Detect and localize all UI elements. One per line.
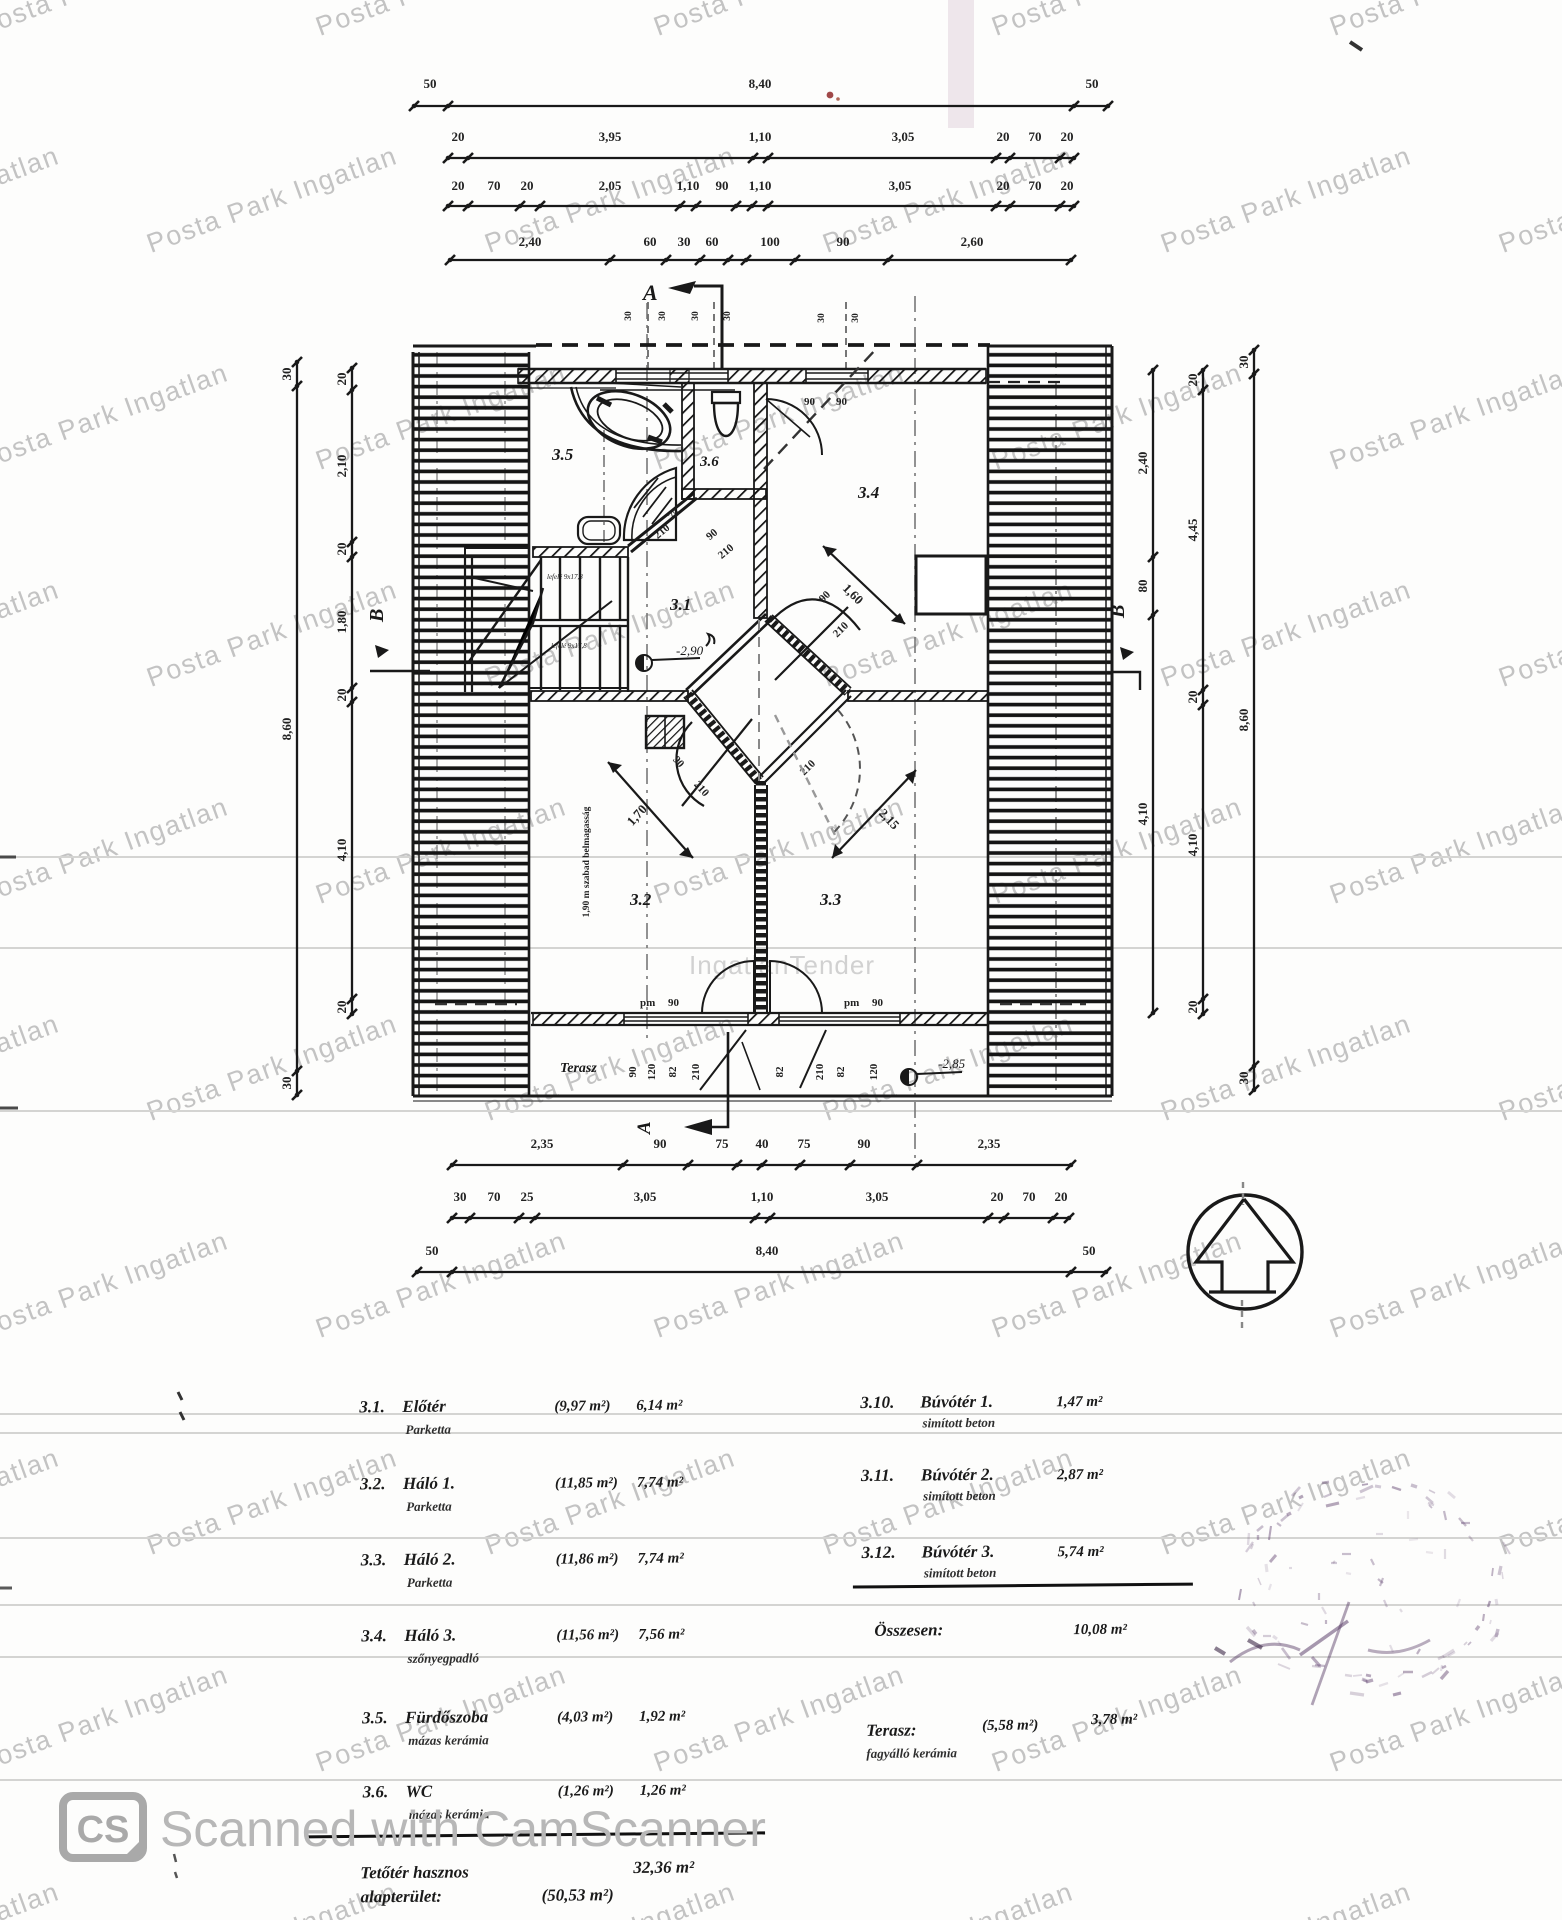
svg-text:10,08 m²: 10,08 m²: [1073, 1622, 1127, 1638]
svg-text:25: 25: [521, 1189, 535, 1204]
svg-text:4,45: 4,45: [1185, 518, 1200, 541]
svg-text:20: 20: [1185, 374, 1200, 387]
svg-text:30: 30: [624, 311, 634, 321]
svg-text:8,40: 8,40: [749, 76, 772, 91]
svg-text:Parketta: Parketta: [407, 1575, 453, 1590]
svg-text:20: 20: [452, 129, 465, 144]
svg-text:Fürdőszoba: Fürdőszoba: [404, 1707, 489, 1727]
svg-text:Posta Park Ingatlan: Posta Park Ingatlan: [0, 1442, 63, 1561]
svg-text:82: 82: [835, 1066, 847, 1078]
svg-text:3,05: 3,05: [892, 129, 915, 144]
svg-text:2,35: 2,35: [531, 1136, 554, 1151]
svg-text:210: 210: [716, 541, 737, 561]
svg-text:30: 30: [658, 311, 668, 321]
svg-text:3.4: 3.4: [857, 483, 879, 502]
svg-text:Terasz: Terasz: [560, 1061, 597, 1076]
svg-text:1,90 m szabad belmagasság: 1,90 m szabad belmagasság: [582, 806, 592, 917]
svg-text:20: 20: [1061, 129, 1074, 144]
svg-text:50: 50: [1086, 76, 1099, 91]
svg-text:20: 20: [1061, 178, 1074, 193]
svg-text:60: 60: [706, 234, 719, 249]
svg-text:1,10: 1,10: [749, 129, 772, 144]
svg-text:82: 82: [774, 1066, 786, 1078]
svg-text:3.5.: 3.5.: [361, 1708, 388, 1727]
svg-text:3.3: 3.3: [819, 890, 842, 909]
svg-text:4,10: 4,10: [334, 839, 349, 862]
svg-text:Posta Park Ingatlan: Posta Park Ingatlan: [481, 1442, 739, 1561]
svg-text:75: 75: [798, 1136, 812, 1151]
svg-text:szőnyegpadló: szőnyegpadló: [406, 1650, 479, 1666]
svg-text:80: 80: [1135, 580, 1150, 593]
svg-text:Posta Park Ingatlan: Posta Park Ingatlan: [1326, 1225, 1562, 1344]
svg-text:-2,85: -2,85: [938, 1056, 966, 1071]
svg-text:3,05: 3,05: [866, 1189, 889, 1204]
svg-text:Posta Park Ingatlan: Posta Park Ingatlan: [1495, 574, 1562, 693]
svg-text:Posta Park Ingatlan: Posta Park Ingatlan: [0, 0, 232, 42]
svg-text:2,40: 2,40: [519, 234, 542, 249]
svg-text:30: 30: [279, 1077, 294, 1090]
svg-text:3.2.: 3.2.: [359, 1474, 386, 1493]
svg-text:lefelé 9x17,8: lefelé 9x17,8: [551, 642, 587, 650]
svg-text:Posta Park Ingatlan: Posta Park Ingatlan: [650, 1225, 908, 1344]
svg-text:Posta Park Ingatlan: Posta Park Ingatlan: [1326, 0, 1562, 42]
svg-text:A: A: [641, 280, 658, 305]
svg-text:50: 50: [1083, 1243, 1096, 1258]
svg-text:Összesen:: Összesen:: [874, 1620, 943, 1640]
svg-text:A: A: [634, 1121, 655, 1135]
svg-text:120: 120: [646, 1063, 658, 1080]
svg-text:Posta Park Ingatlan: Posta Park Ingatlan: [819, 1876, 1077, 1920]
svg-text:3.6: 3.6: [699, 454, 719, 470]
svg-text:B: B: [1107, 605, 1129, 619]
svg-text:Tetőtér hasznos: Tetőtér hasznos: [360, 1862, 469, 1882]
svg-text:30: 30: [678, 234, 691, 249]
svg-text:-2,90: -2,90: [676, 643, 704, 658]
svg-text:Posta Park Ingatlan: Posta Park Ingatlan: [0, 1659, 232, 1778]
svg-text:30: 30: [851, 313, 861, 323]
svg-text:Posta Park Ingatlan: Posta Park Ingatlan: [0, 140, 63, 259]
svg-text:(11,56 m²): (11,56 m²): [556, 1627, 619, 1644]
svg-text:70: 70: [488, 1189, 501, 1204]
svg-text:90: 90: [836, 396, 848, 408]
svg-text:90: 90: [668, 997, 680, 1009]
svg-text:pm: pm: [844, 997, 859, 1009]
svg-text:82: 82: [667, 1066, 679, 1078]
svg-text:8,60: 8,60: [279, 718, 294, 741]
svg-text:90: 90: [872, 997, 884, 1009]
svg-text:Posta Park Ingatlan: Posta Park Ingatlan: [988, 1225, 1246, 1344]
svg-text:30: 30: [279, 368, 294, 381]
svg-text:90: 90: [837, 234, 850, 249]
svg-text:3,05: 3,05: [889, 178, 912, 193]
svg-text:20: 20: [521, 178, 534, 193]
svg-text:simított beton: simított beton: [921, 1415, 995, 1431]
svg-text:Posta Park Ingatlan: Posta Park Ingatlan: [1157, 1008, 1415, 1127]
svg-text:3,95: 3,95: [599, 129, 622, 144]
svg-text:Posta Park Ingatlan: Posta Park Ingatlan: [0, 791, 232, 910]
svg-text:1,10: 1,10: [677, 178, 700, 193]
svg-text:60: 60: [644, 234, 657, 249]
svg-text:2,05: 2,05: [599, 178, 622, 193]
svg-text:(11,85 m²): (11,85 m²): [555, 1475, 618, 1492]
svg-text:40: 40: [756, 1136, 769, 1151]
svg-text:Posta Park Ingatlan: Posta Park Ingatlan: [143, 1008, 401, 1127]
svg-text:Posta Park Ingatlan: Posta Park Ingatlan: [1157, 140, 1415, 259]
svg-text:Posta Park Ingatlan: Posta Park Ingatlan: [1157, 1442, 1415, 1561]
svg-text:90: 90: [858, 1136, 871, 1151]
svg-text:3.11.: 3.11.: [860, 1466, 894, 1485]
svg-text:2,87 m²: 2,87 m²: [1056, 1467, 1104, 1483]
svg-text:simított beton: simított beton: [922, 1488, 996, 1504]
svg-text:Búvótér 2.: Búvótér 2.: [920, 1465, 994, 1485]
svg-text:fagyálló kerámia: fagyálló kerámia: [866, 1745, 957, 1761]
svg-text:7,56 m²: 7,56 m²: [638, 1627, 685, 1643]
svg-text:70: 70: [1029, 178, 1042, 193]
svg-text:90: 90: [716, 178, 729, 193]
svg-text:6,14 m²: 6,14 m²: [636, 1398, 683, 1414]
svg-text:32,36 m²: 32,36 m²: [632, 1857, 695, 1877]
svg-text:20: 20: [991, 1189, 1004, 1204]
svg-text:4,10: 4,10: [1135, 803, 1150, 826]
svg-text:75: 75: [716, 1136, 730, 1151]
svg-text:Posta Park Ingatlan: Posta Park Ingatlan: [1495, 1876, 1562, 1920]
svg-text:2,10: 2,10: [334, 455, 349, 478]
svg-text:3.1.: 3.1.: [358, 1397, 385, 1416]
svg-text:90: 90: [654, 1136, 667, 1151]
svg-text:30: 30: [454, 1189, 467, 1204]
svg-text:Posta Park Ingatlan: Posta Park Ingatlan: [312, 0, 570, 42]
svg-text:Háló 3.: Háló 3.: [403, 1626, 456, 1645]
svg-text:Posta Park Ingatlan: Posta Park Ingatlan: [1157, 574, 1415, 693]
svg-text:5,74 m²: 5,74 m²: [1058, 1544, 1105, 1560]
svg-text:pm: pm: [640, 997, 655, 1009]
svg-text:Háló 2.: Háló 2.: [403, 1550, 456, 1569]
svg-text:2,60: 2,60: [961, 234, 984, 249]
svg-text:20: 20: [1185, 1001, 1200, 1014]
svg-text:20: 20: [1185, 691, 1200, 704]
svg-text:30: 30: [817, 313, 827, 323]
svg-text:Posta Park Ingatlan: Posta Park Ingatlan: [0, 357, 232, 476]
svg-text:Posta Park Ingatlan: Posta Park Ingatlan: [0, 574, 63, 693]
svg-text:210: 210: [814, 1063, 826, 1080]
svg-text:Parketta: Parketta: [406, 1499, 452, 1514]
svg-text:7,74 m²: 7,74 m²: [638, 1551, 685, 1567]
svg-text:Háló 1.: Háló 1.: [402, 1474, 455, 1493]
svg-text:1,10: 1,10: [749, 178, 772, 193]
svg-text:Posta Park Ingatlan: Posta Park Ingatlan: [0, 1876, 63, 1920]
svg-text:Posta Park Ingatlan: Posta Park Ingatlan: [143, 1442, 401, 1561]
svg-text:Posta Park Ingatlan: Posta Park Ingatlan: [988, 0, 1246, 42]
svg-text:20: 20: [997, 178, 1010, 193]
svg-text:Posta Park Ingatlan: Posta Park Ingatlan: [143, 574, 401, 693]
svg-text:20: 20: [997, 129, 1010, 144]
svg-text:1,26 m²: 1,26 m²: [640, 1783, 687, 1799]
svg-text:90: 90: [804, 396, 816, 408]
svg-text:8,40: 8,40: [756, 1243, 779, 1258]
svg-text:Parketta: Parketta: [405, 1422, 451, 1437]
svg-text:1,80: 1,80: [334, 611, 349, 634]
svg-text:Posta Park Ingatlan: Posta Park Ingatlan: [1495, 1442, 1562, 1561]
svg-text:WC: WC: [406, 1782, 433, 1801]
svg-text:100: 100: [760, 234, 780, 249]
svg-text:1,47 m²: 1,47 m²: [1056, 1394, 1103, 1410]
svg-text:3.6.: 3.6.: [362, 1782, 389, 1801]
svg-text:Posta Park Ingatlan: Posta Park Ingatlan: [1326, 357, 1562, 476]
svg-text:70: 70: [488, 178, 501, 193]
svg-text:Posta Park Ingatlan: Posta Park Ingatlan: [1157, 1876, 1415, 1920]
svg-text:Terasz:: Terasz:: [866, 1720, 917, 1739]
svg-text:3.10.: 3.10.: [859, 1393, 894, 1412]
svg-text:3,05: 3,05: [634, 1189, 657, 1204]
svg-text:Előtér: Előtér: [401, 1397, 446, 1416]
svg-text:Búvótér 1.: Búvótér 1.: [919, 1392, 993, 1412]
svg-text:8,60: 8,60: [1236, 709, 1251, 732]
svg-text:Posta Park Ingatlan: Posta Park Ingatlan: [650, 0, 908, 42]
svg-text:2,35: 2,35: [978, 1136, 1001, 1151]
svg-text:30: 30: [1236, 356, 1251, 369]
svg-text:3.4.: 3.4.: [360, 1626, 387, 1645]
svg-text:210: 210: [690, 1063, 702, 1080]
svg-text:90: 90: [627, 1066, 639, 1078]
svg-text:lefelé 9x17,8: lefelé 9x17,8: [547, 573, 583, 581]
svg-text:(9,97 m²): (9,97 m²): [554, 1398, 610, 1414]
svg-text:(5,58 m²): (5,58 m²): [982, 1717, 1038, 1733]
svg-text:70: 70: [1029, 129, 1042, 144]
svg-text:30: 30: [691, 311, 701, 321]
svg-text:70: 70: [1023, 1189, 1036, 1204]
svg-text:4,10: 4,10: [1185, 834, 1200, 857]
svg-text:20: 20: [334, 689, 349, 702]
svg-text:B: B: [366, 609, 388, 623]
svg-text:20: 20: [452, 178, 465, 193]
svg-text:20: 20: [334, 373, 349, 386]
svg-text:90: 90: [670, 754, 687, 771]
svg-text:alapterület:: alapterület:: [361, 1887, 442, 1907]
svg-text:3.2: 3.2: [629, 890, 652, 909]
svg-text:20: 20: [1055, 1189, 1068, 1204]
svg-text:(4,03 m²): (4,03 m²): [557, 1709, 613, 1725]
svg-text:(50,53 m²): (50,53 m²): [541, 1885, 613, 1905]
svg-text:20: 20: [334, 543, 349, 556]
svg-text:(11,86 m²): (11,86 m²): [556, 1551, 619, 1568]
svg-text:20: 20: [334, 1001, 349, 1014]
svg-text:1,10: 1,10: [751, 1189, 774, 1204]
svg-text:(1,26 m²): (1,26 m²): [558, 1783, 614, 1799]
svg-text:CS: CS: [77, 1809, 130, 1851]
svg-text:90: 90: [704, 526, 721, 543]
svg-text:30: 30: [1236, 1072, 1251, 1085]
svg-text:Posta Park Ingatlan: Posta Park Ingatlan: [1495, 1008, 1562, 1127]
svg-text:30: 30: [723, 311, 733, 321]
svg-text:120: 120: [868, 1063, 880, 1080]
svg-text:3.1: 3.1: [669, 595, 691, 614]
svg-text:2,40: 2,40: [1135, 452, 1150, 475]
svg-text:1,92 m²: 1,92 m²: [639, 1709, 686, 1725]
svg-text:3.3.: 3.3.: [360, 1550, 387, 1569]
svg-text:210: 210: [691, 779, 711, 800]
svg-text:Posta Park Ingatlan: Posta Park Ingatlan: [143, 140, 401, 259]
svg-text:Scanned with CamScanner: Scanned with CamScanner: [160, 1801, 766, 1857]
svg-text:3.5: 3.5: [551, 445, 574, 464]
svg-text:Posta Park Ingatlan: Posta Park Ingatlan: [312, 1225, 570, 1344]
svg-text:7,74 m²: 7,74 m²: [637, 1475, 684, 1491]
svg-text:3,78 m²: 3,78 m²: [1090, 1712, 1138, 1728]
svg-text:mázas kerámia: mázas kerámia: [408, 1732, 489, 1748]
svg-text:3.12.: 3.12.: [861, 1543, 896, 1562]
svg-text:Posta Park Ingatlan: Posta Park Ingatlan: [1495, 140, 1562, 259]
svg-text:50: 50: [424, 76, 437, 91]
svg-text:Búvótér 3.: Búvótér 3.: [921, 1542, 995, 1562]
svg-text:50: 50: [426, 1243, 439, 1258]
svg-text:90: 90: [817, 588, 834, 605]
svg-text:simított beton: simított beton: [923, 1565, 997, 1581]
svg-text:Posta Park Ingatlan: Posta Park Ingatlan: [1326, 791, 1562, 910]
svg-text:Posta Park Ingatlan: Posta Park Ingatlan: [0, 1225, 232, 1344]
